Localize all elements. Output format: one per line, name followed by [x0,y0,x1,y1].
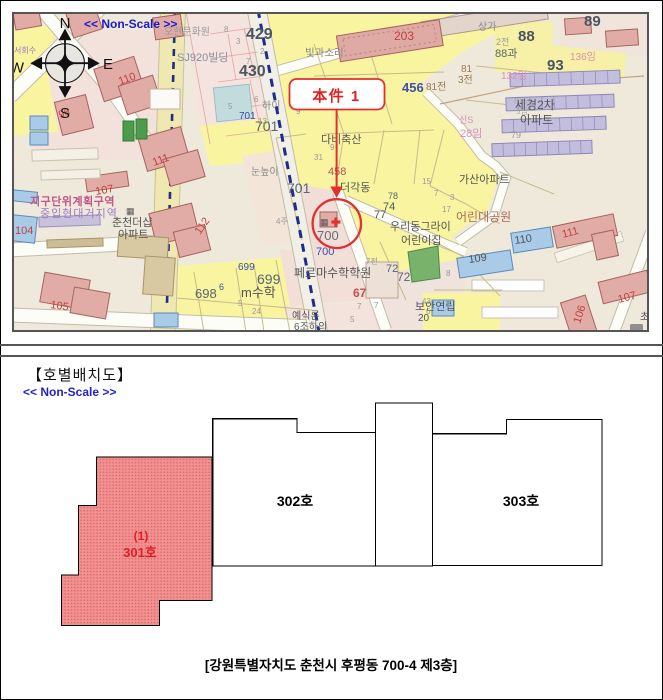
svg-text:(1): (1) [134,529,149,543]
svg-text:109: 109 [468,252,488,266]
svg-text:3전: 3전 [458,74,473,86]
svg-text:서회수: 서회수 [14,46,36,55]
svg-text:2: 2 [260,47,265,56]
svg-text:빛과소리: 빛과소리 [305,47,344,59]
svg-text:699: 699 [238,262,255,273]
svg-text:6: 6 [219,282,224,292]
svg-text:698: 698 [195,286,217,301]
svg-text:2전: 2전 [496,37,509,47]
svg-text:8: 8 [446,269,451,278]
svg-text:110: 110 [514,233,533,247]
svg-text:7: 7 [246,57,251,66]
svg-text:6조하의: 6조하의 [294,320,327,330]
svg-text:세경2차: 세경2차 [515,98,555,112]
svg-text:[강원특별자치도 춘천시 후평동 700-4 제3층]: [강원특별자치도 춘천시 후평동 700-4 제3층] [205,657,457,673]
svg-text:SJ920빌딩: SJ920빌딩 [177,51,228,64]
svg-text:3: 3 [450,193,455,202]
svg-text:3: 3 [236,37,241,46]
svg-text:아파트: 아파트 [520,113,553,127]
svg-text:5: 5 [350,315,355,324]
svg-text:눈높이: 눈높이 [251,166,279,178]
svg-text:상가: 상가 [478,21,496,33]
svg-text:302호: 302호 [277,493,313,509]
svg-text:24: 24 [252,307,261,316]
svg-text:67: 67 [353,286,367,300]
svg-text:춘천더샵: 춘천더샵 [112,215,152,229]
svg-text:13: 13 [258,117,267,126]
svg-text:28임: 28임 [460,127,482,140]
svg-text:5: 5 [238,299,243,308]
svg-text:43: 43 [422,297,431,306]
svg-text:다비축산: 다비축산 [321,133,361,146]
svg-text:88: 88 [518,28,535,45]
svg-text:301호: 301호 [123,545,157,560]
svg-text:89: 89 [584,14,601,30]
svg-text:6: 6 [254,95,259,104]
svg-text:7: 7 [374,301,379,310]
svg-text:9: 9 [330,143,335,152]
svg-text:더각동: 더각동 [340,181,370,194]
svg-text:m수학: m수학 [241,285,276,300]
svg-text:5: 5 [228,102,233,111]
svg-text:아파트: 아파트 [118,228,148,241]
svg-text:701: 701 [239,111,256,122]
svg-text:79: 79 [511,130,521,140]
svg-text:78: 78 [388,191,398,201]
svg-text:72: 72 [397,270,411,284]
svg-text:▦: ▦ [126,206,135,216]
svg-text:7: 7 [434,189,439,198]
svg-text:어린이집: 어린이집 [401,234,441,247]
svg-text:430: 430 [239,63,266,80]
svg-text:303호: 303호 [503,493,539,509]
svg-text:105: 105 [50,299,70,313]
svg-text:8: 8 [224,25,229,34]
svg-text:4주: 4주 [276,217,288,226]
svg-text:신S: 신S [459,115,473,125]
svg-text:104: 104 [15,225,33,237]
svg-text:W: W [14,60,25,77]
svg-text:77: 77 [374,209,386,221]
svg-text:우리동그라이: 우리동그라이 [390,220,451,233]
svg-text:E: E [103,56,113,73]
svg-text:7전: 7전 [366,256,378,266]
svg-text:<< Non-Scale >>: << Non-Scale >> [84,17,177,31]
svg-text:701: 701 [287,180,311,196]
svg-text:6: 6 [426,307,431,316]
svg-text:페르마수학학원: 페르마수학학원 [294,266,371,280]
svg-text:81: 81 [461,64,473,75]
svg-text:중입현대거지역: 중입현대거지역 [40,207,118,220]
svg-text:하이: 하이 [262,99,280,112]
svg-text:88과: 88과 [495,47,517,60]
svg-text:어린대공원: 어린대공원 [456,210,511,224]
svg-text:S: S [60,105,70,122]
svg-text:7: 7 [357,302,362,311]
svg-text:17: 17 [442,205,451,214]
svg-text:203: 203 [394,29,414,43]
svg-text:136임: 136임 [570,50,596,63]
svg-text:예식론: 예식론 [292,310,320,322]
svg-text:N: N [60,15,71,32]
svg-text:本件 1: 本件 1 [312,87,361,105]
svg-text:15: 15 [422,177,431,186]
svg-text:▦: ▦ [320,217,329,227]
svg-text:31: 31 [314,153,323,162]
svg-text:93: 93 [547,57,564,74]
svg-text:81전: 81전 [426,81,446,93]
svg-text:429: 429 [246,26,273,43]
svg-text:초: 초 [640,311,647,323]
svg-text:456: 456 [402,80,424,95]
svg-text:132임: 132임 [501,69,527,82]
svg-text:가산아파트: 가산아파트 [459,173,510,186]
